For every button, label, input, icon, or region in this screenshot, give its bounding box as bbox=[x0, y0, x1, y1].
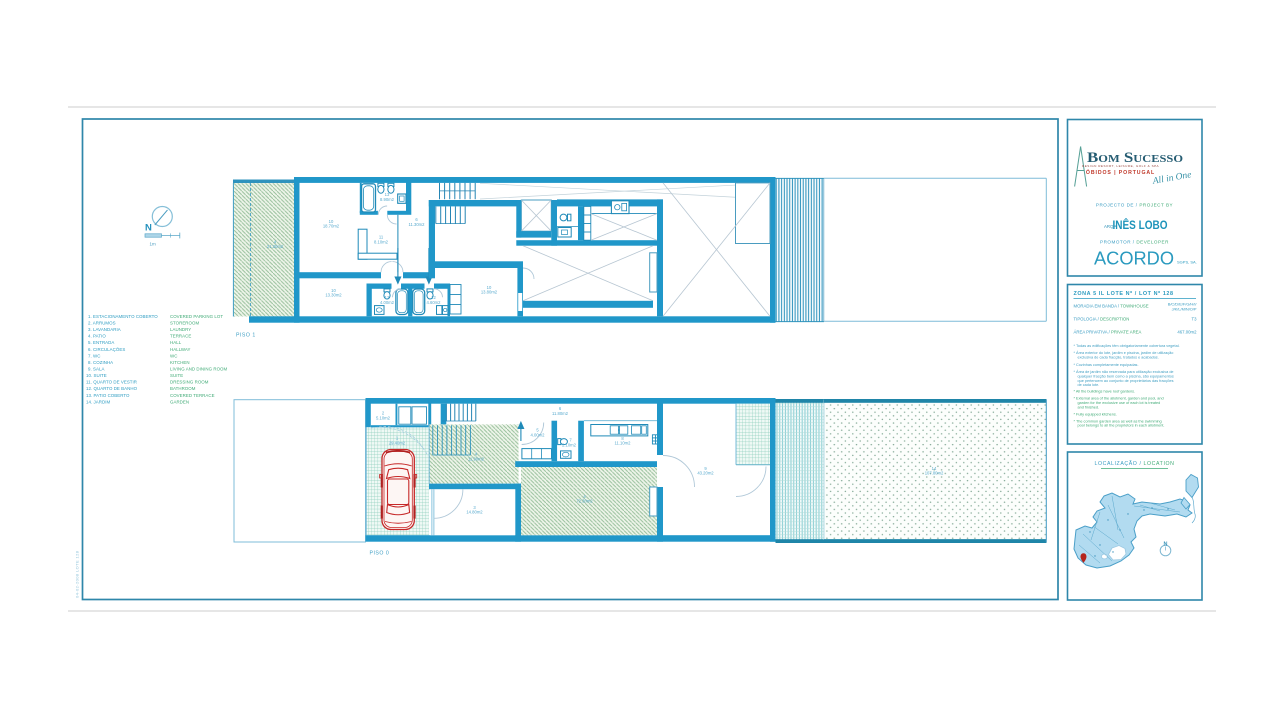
svg-text:GARDEN: GARDEN bbox=[170, 399, 189, 404]
svg-text:13.80m2: 13.80m2 bbox=[481, 290, 498, 295]
svg-text:LOCALIZAÇÃO / LOCATION: LOCALIZAÇÃO / LOCATION bbox=[1095, 460, 1175, 467]
svg-text:6. CIRCULAÇÕES: 6. CIRCULAÇÕES bbox=[88, 347, 125, 352]
svg-text:72.30m2: 72.30m2 bbox=[576, 499, 593, 504]
svg-text:* All the buildings have roof: * All the buildings have roof gardens. bbox=[1074, 390, 1136, 394]
svg-text:13.30m2: 13.30m2 bbox=[325, 293, 342, 298]
svg-text:que pertencem ao conjunto de p: que pertencem ao conjunto de proprietári… bbox=[1078, 379, 1174, 383]
svg-text:INÊS LOBO: INÊS LOBO bbox=[1113, 218, 1168, 232]
svg-text:T3: T3 bbox=[1191, 317, 1197, 322]
svg-text:1m: 1m bbox=[150, 242, 157, 247]
svg-text:2.10m2: 2.10m2 bbox=[562, 442, 577, 447]
svg-text:HALLWAY: HALLWAY bbox=[170, 347, 191, 352]
svg-text:12. QUARTO DE BANHO: 12. QUARTO DE BANHO bbox=[86, 386, 138, 391]
svg-text:KITCHEN: KITCHEN bbox=[170, 360, 190, 365]
svg-text:8. COZINHA: 8. COZINHA bbox=[88, 360, 113, 365]
svg-text:COVERED PARKING LOT: COVERED PARKING LOT bbox=[170, 314, 223, 319]
svg-text:18.70m2: 18.70m2 bbox=[323, 224, 340, 229]
svg-text:DESIGN RESORT, LEISURE, GOLF &: DESIGN RESORT, LEISURE, GOLF & SPA bbox=[1082, 164, 1159, 168]
svg-text:BATHROOM: BATHROOM bbox=[170, 386, 196, 391]
svg-text:43.20m2: 43.20m2 bbox=[697, 471, 714, 476]
svg-text:MORADIA EM BANDA / TOWNHOUSE: MORADIA EM BANDA / TOWNHOUSE bbox=[1074, 304, 1149, 309]
svg-text:WC: WC bbox=[170, 353, 177, 358]
svg-text:8.10m2: 8.10m2 bbox=[374, 239, 389, 244]
svg-text:ZONA 5 IL LOTE Nº / LO: ZONA 5 IL LOTE Nº / LOT Nº 128 bbox=[1074, 291, 1174, 297]
svg-text:and finished.: and finished. bbox=[1078, 405, 1100, 409]
svg-text:DRESSING ROOM: DRESSING ROOM bbox=[170, 380, 209, 385]
svg-text:* Cozinhas completamente equip: * Cozinhas completamente equipadas. bbox=[1074, 363, 1139, 367]
svg-text:J/K/L/M/N/O/P: J/K/L/M/N/O/P bbox=[1172, 306, 1197, 311]
svg-text:exclusiva de cada fracção, tra: exclusiva de cada fracção, tratados e ac… bbox=[1078, 355, 1159, 359]
svg-text:9. SALA: 9. SALA bbox=[88, 367, 104, 372]
svg-text:14. JARDIM: 14. JARDIM bbox=[86, 399, 110, 404]
svg-text:3. LAVANDARIA: 3. LAVANDARIA bbox=[88, 327, 121, 332]
svg-text:4.00m2: 4.00m2 bbox=[380, 300, 395, 305]
svg-text:8.90m2: 8.90m2 bbox=[380, 197, 395, 202]
svg-text:qualquer fracção bem como a pi: qualquer fracção bem como a piscina, são… bbox=[1078, 374, 1174, 378]
svg-text:PISO 0: PISO 0 bbox=[370, 550, 390, 556]
svg-text:467.00m2: 467.00m2 bbox=[1177, 330, 1197, 335]
svg-text:11. QUARTO DE VESTIR: 11. QUARTO DE VESTIR bbox=[86, 380, 137, 385]
svg-text:4.60m2: 4.60m2 bbox=[427, 300, 442, 305]
svg-text:29.40m2: 29.40m2 bbox=[389, 440, 406, 445]
svg-text:1. ESTACIONAMENTO COBERTO: 1. ESTACIONAMENTO COBERTO bbox=[88, 314, 158, 319]
svg-text:TIPOLOGIA / DESCRIPTION: TIPOLOGIA / DESCRIPTION bbox=[1074, 317, 1130, 322]
svg-text:ÁREA PRIVATIVA / PRIVATE A: ÁREA PRIVATIVA / PRIVATE AREA bbox=[1074, 330, 1142, 335]
svg-text:LAUNDRY: LAUNDRY bbox=[170, 327, 191, 332]
svg-text:ACORDO: ACORDO bbox=[1094, 248, 1174, 269]
svg-text:* Área exterior do lote, jardi: * Área exterior do lote, jardim e piscin… bbox=[1074, 351, 1174, 355]
svg-text:11.30m2: 11.30m2 bbox=[409, 222, 426, 227]
svg-text:11.90m2: 11.90m2 bbox=[468, 457, 485, 462]
svg-text:PISO 1: PISO 1 bbox=[236, 332, 256, 338]
svg-text:STOREROOM: STOREROOM bbox=[170, 321, 199, 326]
svg-text:13. PATIO COBERTO: 13. PATIO COBERTO bbox=[86, 393, 130, 398]
svg-text:21.30m2: 21.30m2 bbox=[267, 244, 284, 249]
svg-text:11.10m2: 11.10m2 bbox=[615, 441, 632, 446]
svg-text:garden for the exclusive use o: garden for the exclusive use of each lot… bbox=[1078, 401, 1161, 405]
svg-text:SUITE: SUITE bbox=[170, 373, 183, 378]
svg-text:HALL: HALL bbox=[170, 340, 182, 345]
svg-text:* The common garden area as we: * The common garden area as well as the … bbox=[1074, 419, 1162, 423]
svg-text:* External area of the allotme: * External area of the allotment, garden… bbox=[1074, 397, 1164, 401]
svg-text:4.00m2: 4.00m2 bbox=[531, 432, 546, 437]
svg-text:ÓBIDOS | PORTUGAL: ÓBIDOS | PORTUGAL bbox=[1086, 168, 1155, 176]
svg-text:5. ENTRADA: 5. ENTRADA bbox=[88, 340, 114, 345]
svg-text:SGPS, SA.: SGPS, SA. bbox=[1177, 260, 1197, 265]
svg-text:* Área de jardim não reservada: * Área de jardim não reservada para util… bbox=[1074, 370, 1174, 374]
svg-text:N: N bbox=[145, 223, 152, 234]
svg-text:7. WC: 7. WC bbox=[88, 353, 100, 358]
svg-text:10. SUITE: 10. SUITE bbox=[86, 373, 107, 378]
svg-text:PROMOTOR / DEVELOPER: PROMOTOR / DEVELOPER bbox=[1100, 240, 1169, 245]
svg-text:107.80m2: 107.80m2 bbox=[925, 471, 944, 476]
svg-text:4. PATIO: 4. PATIO bbox=[88, 334, 106, 339]
svg-text:N: N bbox=[1164, 542, 1168, 548]
svg-text:TERRACE: TERRACE bbox=[170, 334, 191, 339]
svg-text:14.80m2: 14.80m2 bbox=[466, 510, 483, 515]
svg-text:5.10m2: 5.10m2 bbox=[376, 415, 391, 420]
svg-text:04-02-2008 LOTE 128: 04-02-2008 LOTE 128 bbox=[75, 550, 80, 598]
svg-text:11.80m2: 11.80m2 bbox=[552, 411, 569, 416]
svg-text:pool belongs to all the propri: pool belongs to all the proprietors in e… bbox=[1078, 424, 1165, 428]
svg-text:COVERED TERRACE: COVERED TERRACE bbox=[170, 393, 215, 398]
svg-text:* Todas as edificações têm obr: * Todas as edificações têm obrigatoriame… bbox=[1074, 344, 1180, 348]
svg-text:2. ARRUMOS: 2. ARRUMOS bbox=[88, 321, 116, 326]
svg-text:PROJECTO DE / PROJECT BY: PROJECTO DE / PROJECT BY bbox=[1096, 203, 1173, 208]
svg-text:LIVING AND DINING ROOM: LIVING AND DINING ROOM bbox=[170, 367, 228, 372]
svg-text:* Fully equipped kitchens.: * Fully equipped kitchens. bbox=[1074, 412, 1117, 416]
svg-text:de cada lote.: de cada lote. bbox=[1078, 383, 1100, 387]
